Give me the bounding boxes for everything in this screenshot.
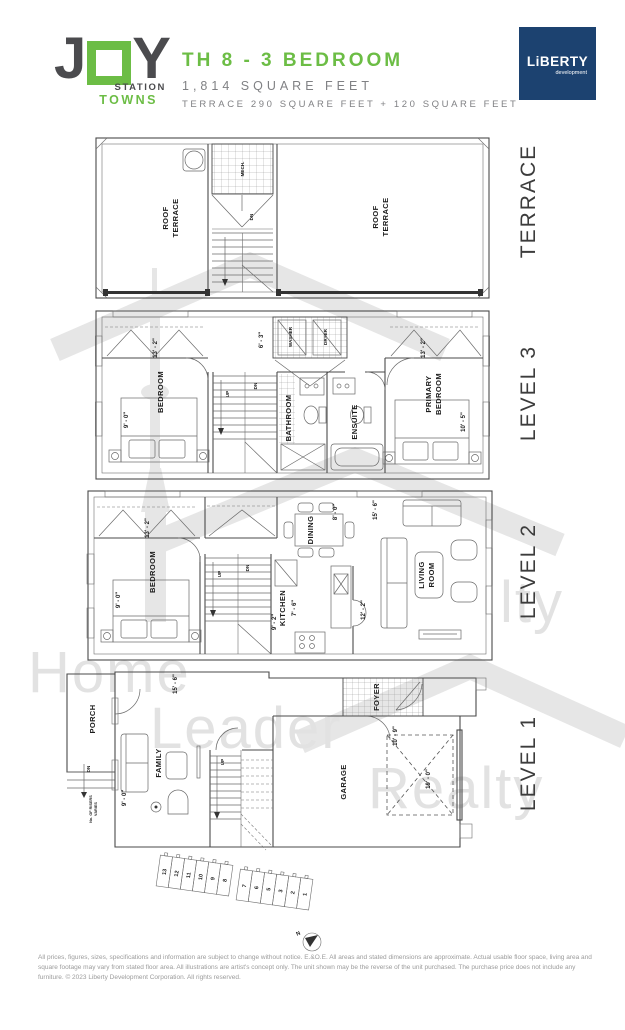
primary-closet [385,327,483,358]
laundry-width-dim: 6' - 3" [259,332,265,348]
washer-label: WASHER [288,326,293,347]
roof-terrace-right-label: ROOF TERRACE [371,197,390,236]
primary-bedroom-label: PRIMARY BEDROOM [424,373,443,415]
porch-label: PORCH [88,704,97,733]
dryer-label: DRYER [323,328,328,345]
stairs-up-label: UP [220,759,225,765]
living-room-label-line1: LIVING [417,561,426,588]
kitchen-width-dim: 9' - 2" [272,614,278,630]
terrace-floor-plan: MECH. DN [95,137,490,299]
svg-text:TERRACE: TERRACE [381,197,390,236]
svg-text:BEDROOM: BEDROOM [434,373,443,415]
kitchen: KITCHEN 7' - 6" 9' - 2" [272,560,351,653]
corner-ticks [96,138,489,298]
garage: GARAGE 10' - 9" 19' - 0" [339,726,462,820]
hall-closet [205,497,277,538]
stairs: DN [212,213,273,292]
unit-number: 12 [174,870,181,877]
stairs-up-label: UP [217,571,222,577]
kitchen-label: KITCHEN [278,590,287,626]
pier [476,678,486,690]
side-label-terrace: TERRACE [517,116,541,286]
stair-door-swing [216,728,238,750]
garage-depth-dim: 19' - 0" [426,769,432,789]
living-depth-dim: 12' - 2" [361,600,367,620]
joy-wordmark: J Y [54,30,174,88]
stairs: UP [210,716,273,850]
unit-number: 2 [290,891,296,895]
unit-number: 10 [198,874,205,881]
side-label-level3: LEVEL 3 [517,308,541,478]
bedroom-label: BEDROOM [156,371,165,413]
keyplan-left-block: 13 12 11 10 9 8 [156,852,233,896]
stairs-dn-label: DN [249,213,254,220]
dining-width-dim: 8' - 0" [333,504,339,520]
logo-towns-text: TOWNS [54,93,158,107]
unit-number: 5 [266,887,272,891]
liberty-name: LiBERTY [519,54,596,69]
plan-area: 1,814 SQUARE FEET [182,79,518,93]
terrace-bottom-wall [103,289,483,296]
svg-text:ROOF: ROOF [371,205,380,228]
level3-floor-plan: WASHER DRYER 6' - 3" BEDROOM 13' - 2" 9'… [95,310,490,480]
bedroom-label: BEDROOM [148,551,157,593]
roof-terrace-left-label: ROOF TERRACE [161,198,180,237]
garage-label: GARAGE [339,764,348,799]
porch-dn-label: DN [86,765,91,772]
unit-number: 7 [242,884,248,888]
bedroom-width-dim: 13' - 2" [153,338,159,358]
logo-letter-j: J [54,30,84,88]
level2-floor-plan: BEDROOM 13' - 2" 9' - 0" UP D [85,490,495,662]
site-key-plan: 13 12 11 10 9 8 7 6 5 3 2 1 [140,848,370,958]
unit-number: 6 [254,886,260,890]
garage-width-dim: 10' - 9" [393,726,399,746]
side-label-level2: LEVEL 2 [517,486,541,656]
svg-text:ROOF: ROOF [161,206,170,229]
stairs-dn-label: DN [245,564,250,571]
kitchen-depth-dim: 7' - 6" [292,600,298,616]
family-label: FAMILY [154,748,163,777]
family-depth-dim: 9' - 0" [122,790,128,806]
risers-note-line1: No. OF RISERS [89,795,93,823]
unit-number: 13 [162,869,169,876]
roof-hatch-doors [212,195,273,227]
bedroom-depth-dim: 9' - 0" [124,412,130,428]
bathroom-label: BATHROOM [284,395,293,442]
unit-number: 9 [210,877,216,881]
north-arrow: N [296,931,321,951]
unit-number: 1 [302,893,308,897]
stairs-dn-label: DN [253,382,258,389]
liberty-development-logo: LiBERTY development [519,27,596,100]
terrace-parapet-line [102,144,483,292]
dining-set: DINING 8' - 0" [284,503,354,557]
plan-terrace-area: TERRACE 290 SQUARE FEET + 120 SQUARE FEE… [182,99,518,110]
ensuite-door-swing [367,372,385,390]
title-block: TH 8 - 3 BEDROOM 1,814 SQUARE FEET TERRA… [182,50,518,110]
family-width-dim: 15' - 6" [173,674,179,694]
plan-title: TH 8 - 3 BEDROOM [182,50,518,72]
logo-letter-y: Y [132,30,169,88]
skylight [183,149,205,171]
living-width-dim: 15' - 6" [373,500,379,520]
liberty-subtitle: development [519,70,596,76]
ensuite: ENSUITE [331,358,385,473]
mech-room: MECH. [212,144,273,194]
primary-width-dim: 13' - 2" [421,338,427,358]
keyplan-right-block: 7 6 5 3 2 1 [236,866,313,910]
foyer: FOYER [343,678,423,740]
porch: PORCH DN No. OF RISERS VARIES [67,674,115,823]
bedroom-door-swing [178,538,200,562]
bedroom-depth-dim: 9' - 0" [116,592,122,608]
unit-number: 3 [278,889,284,893]
disclaimer-text: All prices, figures, sizes, specificatio… [38,953,595,983]
ensuite-label: ENSUITE [350,404,359,439]
mech-label: MECH. [240,162,245,177]
bedroom-width-dim: 13' - 2" [145,518,151,538]
primary-depth-dim: 10' - 5" [461,412,467,432]
stairs: UP DN [205,554,271,654]
pier [460,824,472,838]
svg-text:TERRACE: TERRACE [171,198,180,237]
living-room: LIVING ROOM [381,500,477,639]
unit-number: 8 [222,879,228,883]
family-room: FAMILY 15' - 6" 9' - 0" [121,674,200,814]
foyer-label: FOYER [372,683,381,711]
logo-letter-o-square [87,41,131,85]
bedroom-door-swing [186,358,208,380]
north-label: N [296,931,302,938]
living-room-label-line2: ROOM [427,563,436,588]
svg-text:PRIMARY: PRIMARY [424,375,433,412]
foyer-door-swing [366,716,390,740]
unit-number: 11 [186,872,193,879]
dining-label: DINING [306,516,315,545]
stairs: UP DN [213,372,277,473]
terrace-outer-wall [96,138,489,298]
joy-station-towns-logo: J Y STATION TOWNS [54,30,174,107]
risers-note-line2: VARIES [94,802,98,816]
floorplan-sheet: Home Leader Realty lty J Y STATION TOWNS… [0,0,625,1030]
stairs-up-label: UP [225,391,230,397]
entry-door-swing [115,689,140,714]
primary-door-swing [387,358,414,385]
side-label-level1: LEVEL 1 [517,678,541,848]
level1-floor-plan: PORCH DN No. OF RISERS VARIES FAMILY 15'… [64,664,501,851]
